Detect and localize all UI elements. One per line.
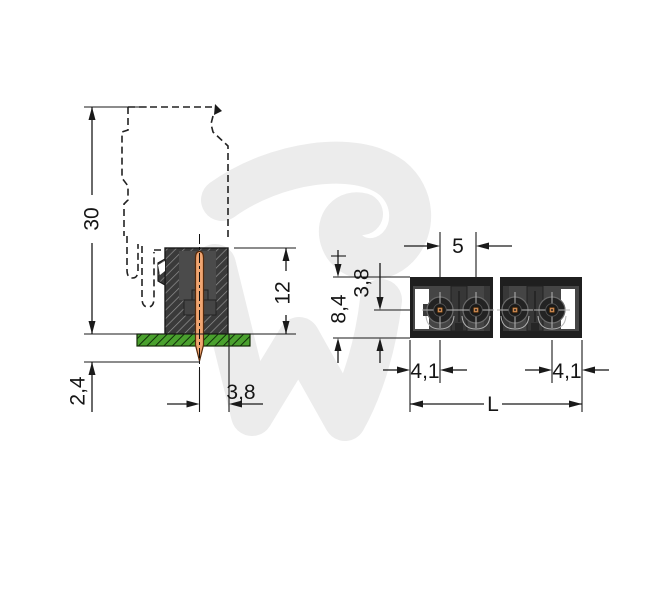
header-housing-section [158, 248, 228, 334]
dimension-label-3-8-side: 3,8 [226, 381, 255, 404]
pcb-strip [137, 334, 250, 346]
dimension-label-4-1-right: 4,1 [552, 360, 581, 383]
solder-pin [196, 234, 204, 370]
dimension-edge-to-pin-right: 4,1 [525, 340, 609, 412]
dimension-label-4-1-left: 4,1 [410, 360, 439, 383]
technical-drawing-page: 30 12 2,4 3,8 [0, 0, 655, 600]
dimension-label-8-4: 8,4 [328, 294, 351, 324]
dimension-edge-to-pin-left: 4,1 [383, 340, 467, 412]
dimension-label-3-8-front: 3,8 [351, 268, 374, 297]
phantom-latch-barb [214, 104, 222, 115]
dimension-total-length: L [410, 393, 582, 416]
dimension-label-2-4: 2,4 [67, 376, 90, 406]
dimension-label-L: L [487, 393, 499, 416]
dimension-label-12: 12 [272, 281, 295, 304]
dimension-label-5: 5 [452, 235, 464, 258]
drawing-canvas: 30 12 2,4 3,8 [0, 0, 655, 600]
dimension-label-30: 30 [81, 207, 104, 230]
